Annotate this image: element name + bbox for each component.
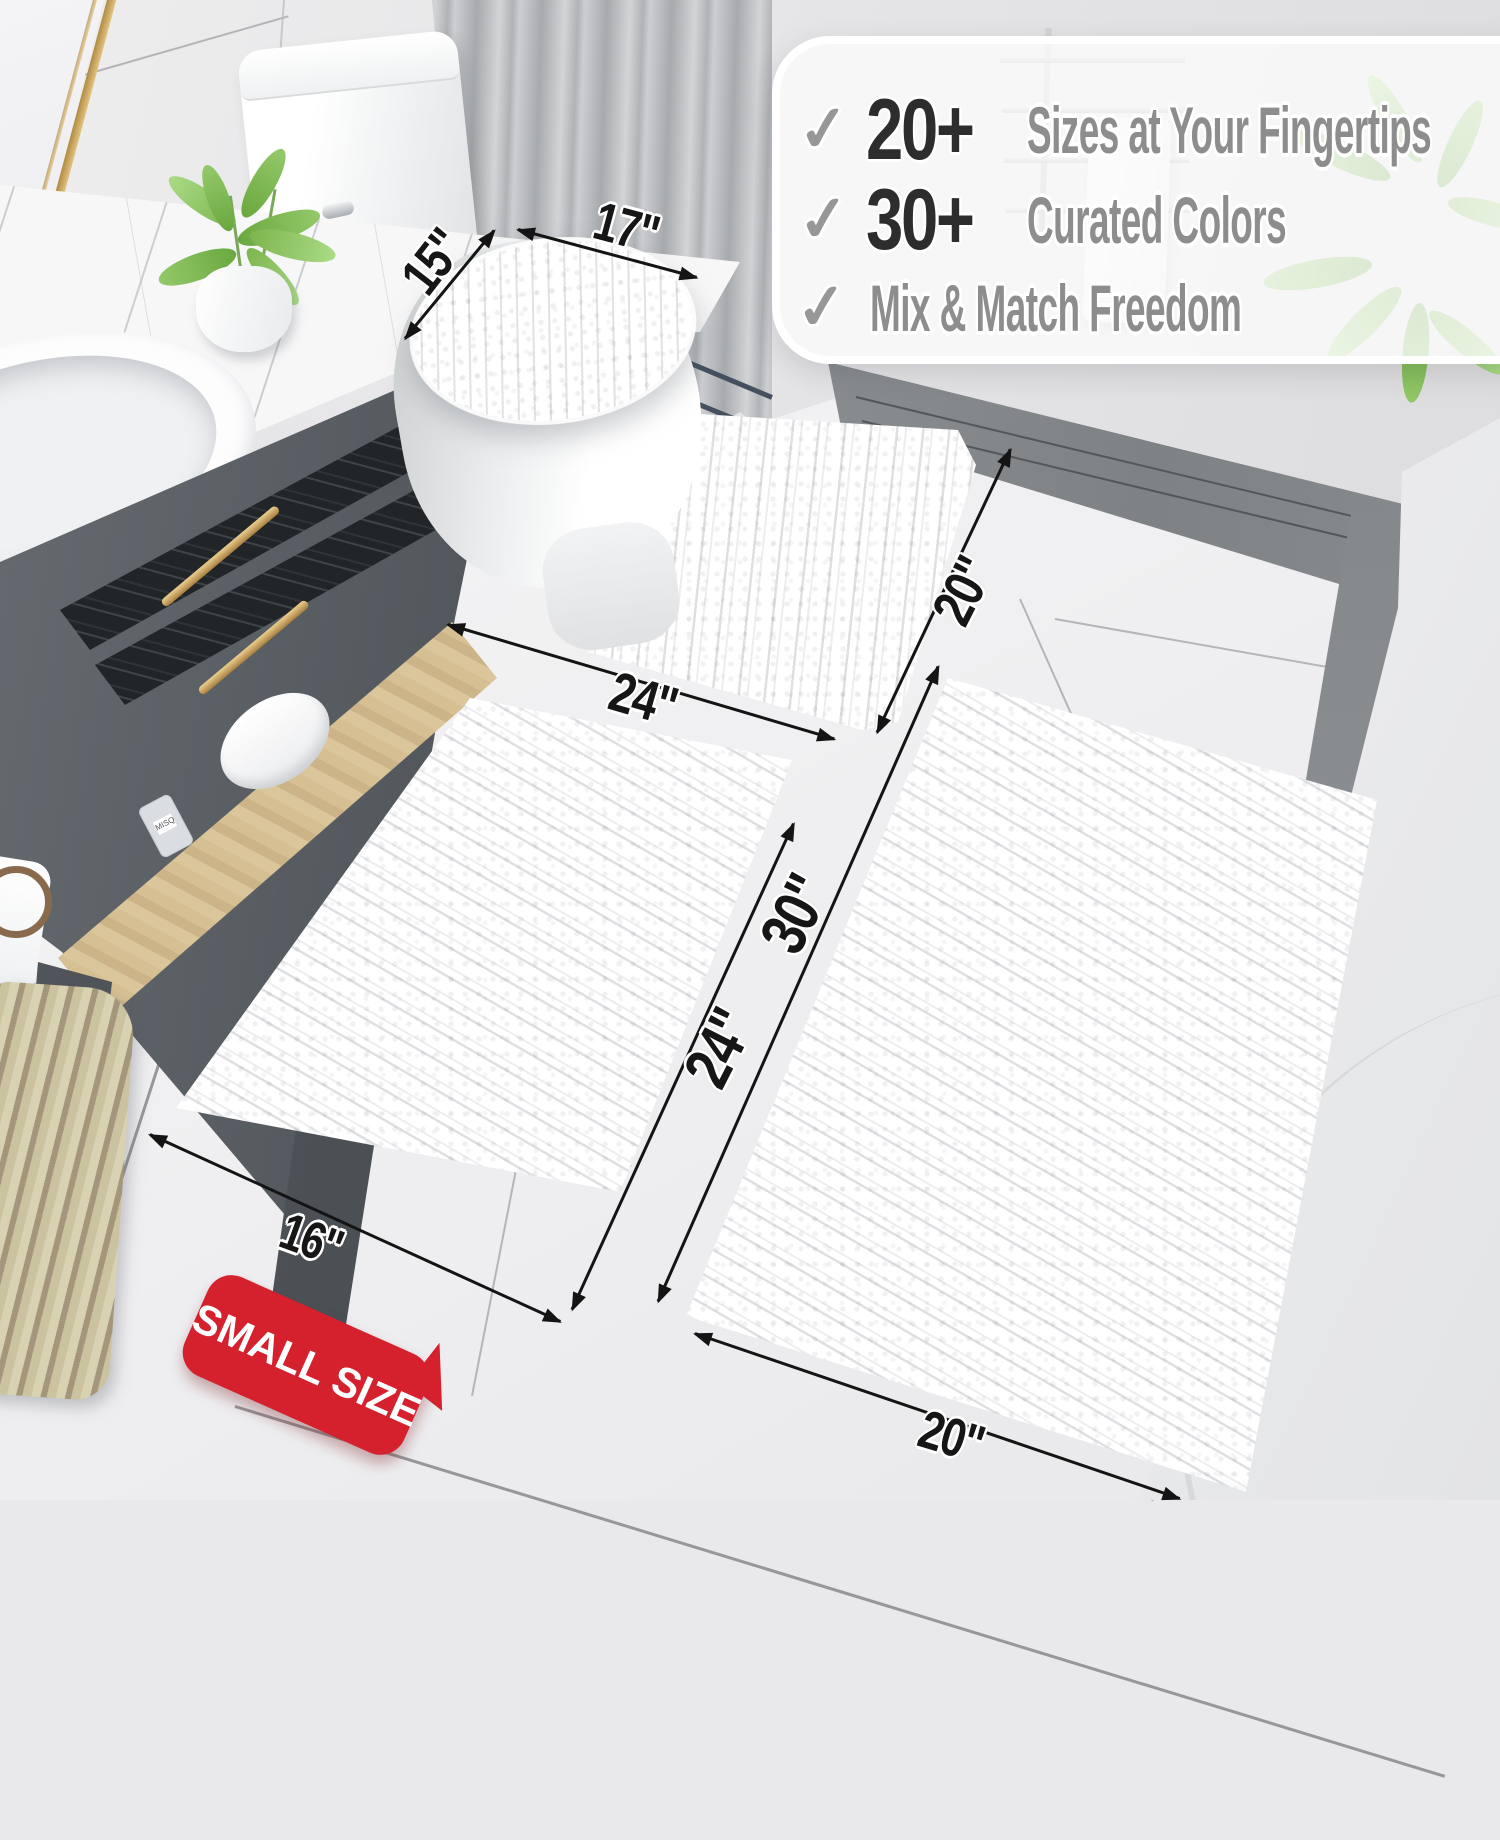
feature-text: Curated Colors (1027, 187, 1286, 253)
feature-row: ✓ Mix & Match Freedom (796, 266, 1500, 350)
feature-number: 30+ (866, 177, 973, 263)
feature-row: ✓ 20+ Sizes at Your Fingertips (798, 88, 1500, 172)
perfume-bottle-label: MISQ (153, 813, 177, 835)
feature-number: 20+ (866, 87, 973, 173)
feature-row: ✓ 30+ Curated Colors (798, 178, 1490, 262)
plant-pot (196, 266, 292, 352)
dimension-label-lid-length: 17" (588, 194, 664, 263)
feature-text: Sizes at Your Fingertips (1027, 97, 1431, 163)
checkmark-icon: ✓ (795, 96, 853, 163)
feature-text: Mix & Match Freedom (870, 275, 1241, 341)
feature-callout-box: ✓ 20+ Sizes at Your Fingertips ✓ 30+ Cur… (772, 36, 1500, 364)
checkmark-icon: ✓ (793, 274, 851, 341)
checkmark-icon: ✓ (795, 186, 853, 253)
bathroom-product-photo: { "features": { "check_glyph": "✓", "ite… (0, 0, 1500, 1500)
